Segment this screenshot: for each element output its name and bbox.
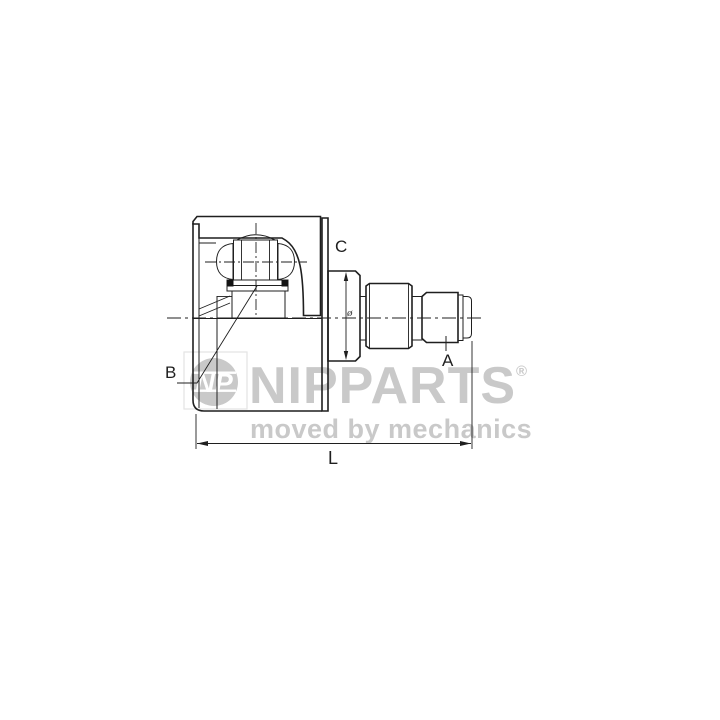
bearing-outer-race-left — [217, 244, 234, 280]
dim-arrow-left — [197, 441, 208, 446]
dim-label-b: B — [165, 363, 176, 382]
bearing-outer-race-right — [278, 244, 295, 280]
housing-hatched-wall — [193, 217, 321, 316]
watermark: NP NIPPARTS ® moved by mechanics — [184, 352, 532, 444]
cv-joint-technical-drawing: NP NIPPARTS ® moved by mechanics — [0, 0, 720, 720]
nipparts-logo-monogram: NP — [195, 368, 233, 398]
dim-label-c: C — [335, 237, 347, 256]
brand-tagline: moved by mechanics — [250, 414, 532, 444]
dim-arrow-up — [344, 272, 348, 281]
product-image-canvas: NP NIPPARTS ® moved by mechanics — [0, 0, 720, 720]
cavity-cone-line — [199, 296, 230, 309]
bearing-inner-race — [234, 240, 278, 280]
cavity-cone-line — [199, 303, 230, 316]
brand-wordmark: NIPPARTS — [249, 357, 516, 415]
shaft-flange — [328, 271, 360, 361]
cylinder-chamfer-lines — [370, 284, 409, 348]
shaft-spline — [422, 293, 458, 343]
snap-ring-left — [227, 280, 234, 287]
snap-ring-right — [282, 280, 289, 287]
inner-race-bore-lines — [242, 240, 270, 280]
shaft-end-stub — [463, 297, 472, 339]
registered-trademark-icon: ® — [516, 363, 527, 380]
dim-label-a: A — [442, 351, 454, 370]
dim-label-l: L — [328, 448, 338, 468]
diameter-symbol: ø — [346, 307, 353, 319]
shaft-cylinder — [366, 284, 412, 349]
